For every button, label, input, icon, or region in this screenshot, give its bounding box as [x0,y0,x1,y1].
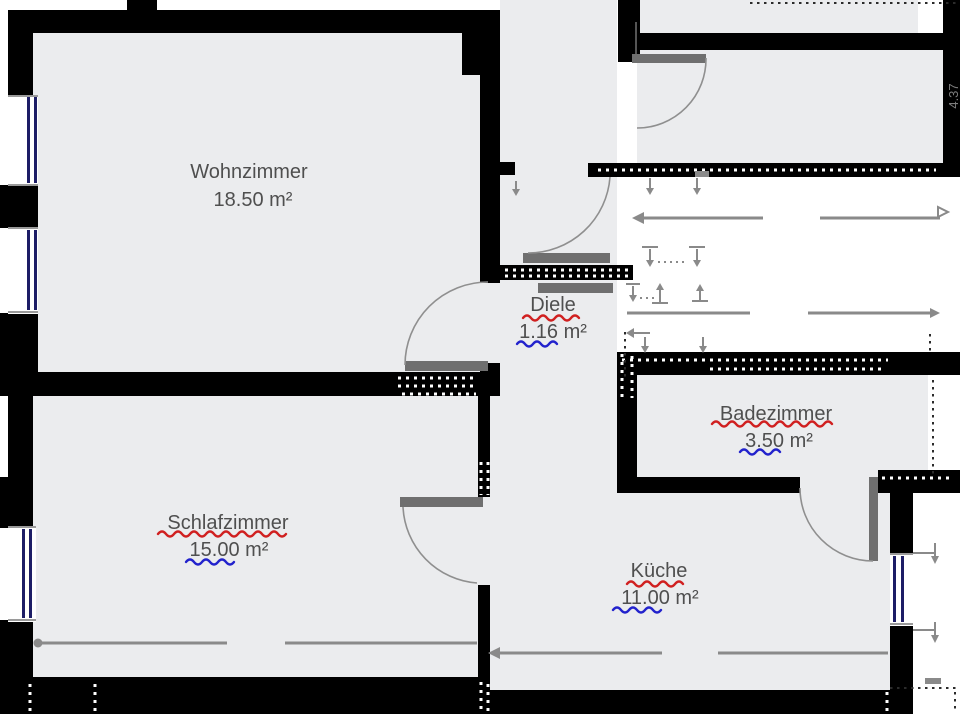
right-outside-area [913,493,960,690]
room-name[interactable]: Küche [631,560,688,582]
room-name[interactable]: Wohnzimmer [190,161,308,183]
window [8,95,38,186]
room-area[interactable]: 11.00 m² [621,587,699,609]
room-area[interactable]: 1.16 m² [519,321,587,343]
upper-strip-floor [640,0,918,33]
room-floor-top-right[interactable] [637,33,943,163]
door-gap-schlafzimmer [478,497,490,585]
room-area[interactable]: 18.50 m² [214,189,293,211]
entry-vestibule-floor[interactable] [500,0,617,265]
floorplan-canvas: Wohnzimmer 18.50 m² Diele 1.16 m² Badezi… [0,0,960,714]
room-name[interactable]: Diele [530,294,576,316]
wall-length-label: 4.37 [946,83,960,108]
room-area[interactable]: 15.00 m² [190,539,269,561]
room-name[interactable]: Badezimmer [720,403,833,425]
room-name[interactable]: Schlafzimmer [167,512,288,534]
window [8,227,38,314]
room-area[interactable]: 3.50 m² [745,430,813,452]
room-floor-schlafzimmer[interactable] [33,396,478,677]
top-right-notch [918,0,943,33]
window [8,526,36,622]
badezimmer-right-opening [928,375,943,477]
window [890,553,913,626]
corridor-area [617,177,960,352]
